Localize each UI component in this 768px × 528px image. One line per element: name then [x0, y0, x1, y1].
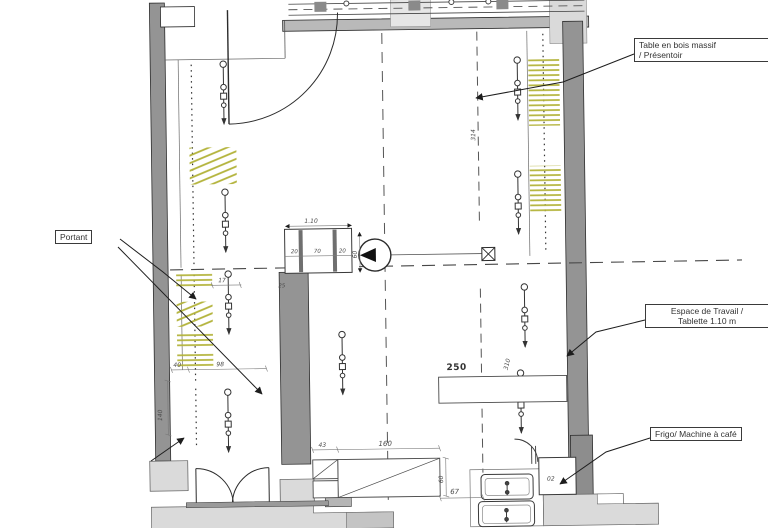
callout-table-line1: Table en bois massif	[639, 40, 716, 50]
top-wall-storefront	[282, 0, 589, 58]
dim-20b: 20	[339, 248, 347, 254]
callout-espace: Espace de Travail / Tablette 1.10 m	[645, 304, 768, 328]
callout-frigo: Frigo/ Machine à café	[650, 427, 742, 441]
callout-table-line2: / Présentoir	[639, 50, 682, 60]
hatched-square-marker	[482, 247, 495, 260]
dim-40: 40	[173, 362, 181, 369]
dim-250: 250	[446, 363, 466, 373]
dim-25: 25	[278, 283, 286, 289]
floor-plan-canvas: 02 17 40 98 140 25 1.10 20 70 20 60 314 …	[0, 0, 768, 528]
dim-67: 67	[450, 488, 460, 496]
dim-140: 140	[157, 409, 164, 421]
dim-160: 160	[378, 440, 392, 448]
rack-hatching	[173, 57, 563, 368]
back-door	[514, 439, 537, 464]
dim-60b: 60	[438, 475, 445, 483]
dim-60: 60	[352, 250, 359, 258]
callout-frigo-text: Frigo/ Machine à café	[655, 429, 737, 439]
dim-70: 70	[314, 249, 322, 255]
dim-20a: 20	[291, 249, 299, 255]
bottom-counter	[313, 458, 441, 498]
dim-98: 98	[216, 361, 224, 368]
work-table	[439, 375, 567, 403]
callout-portant: Portant	[55, 230, 92, 244]
callout-table: Table en bois massif / Présentoir	[634, 38, 768, 62]
dim-43: 43	[318, 442, 326, 449]
interior-lines	[165, 31, 532, 370]
dim-17: 17	[218, 277, 226, 284]
floor-plan-page: 02 17 40 98 140 25 1.10 20 70 20 60 314 …	[0, 0, 768, 528]
callout-portant-text: Portant	[60, 232, 87, 242]
dim-310: 310	[503, 358, 513, 371]
middle-wall	[277, 272, 314, 505]
dim-110: 1.10	[304, 218, 318, 225]
right-wall	[563, 21, 594, 495]
left-wall	[143, 3, 201, 492]
callout-espace-line1: Espace de Travail /	[671, 306, 743, 316]
callout-espace-line2: Tablette 1.10 m	[678, 316, 736, 326]
section-marker	[359, 237, 495, 271]
dim-02: 02	[547, 476, 555, 483]
dim-314: 314	[470, 129, 477, 141]
